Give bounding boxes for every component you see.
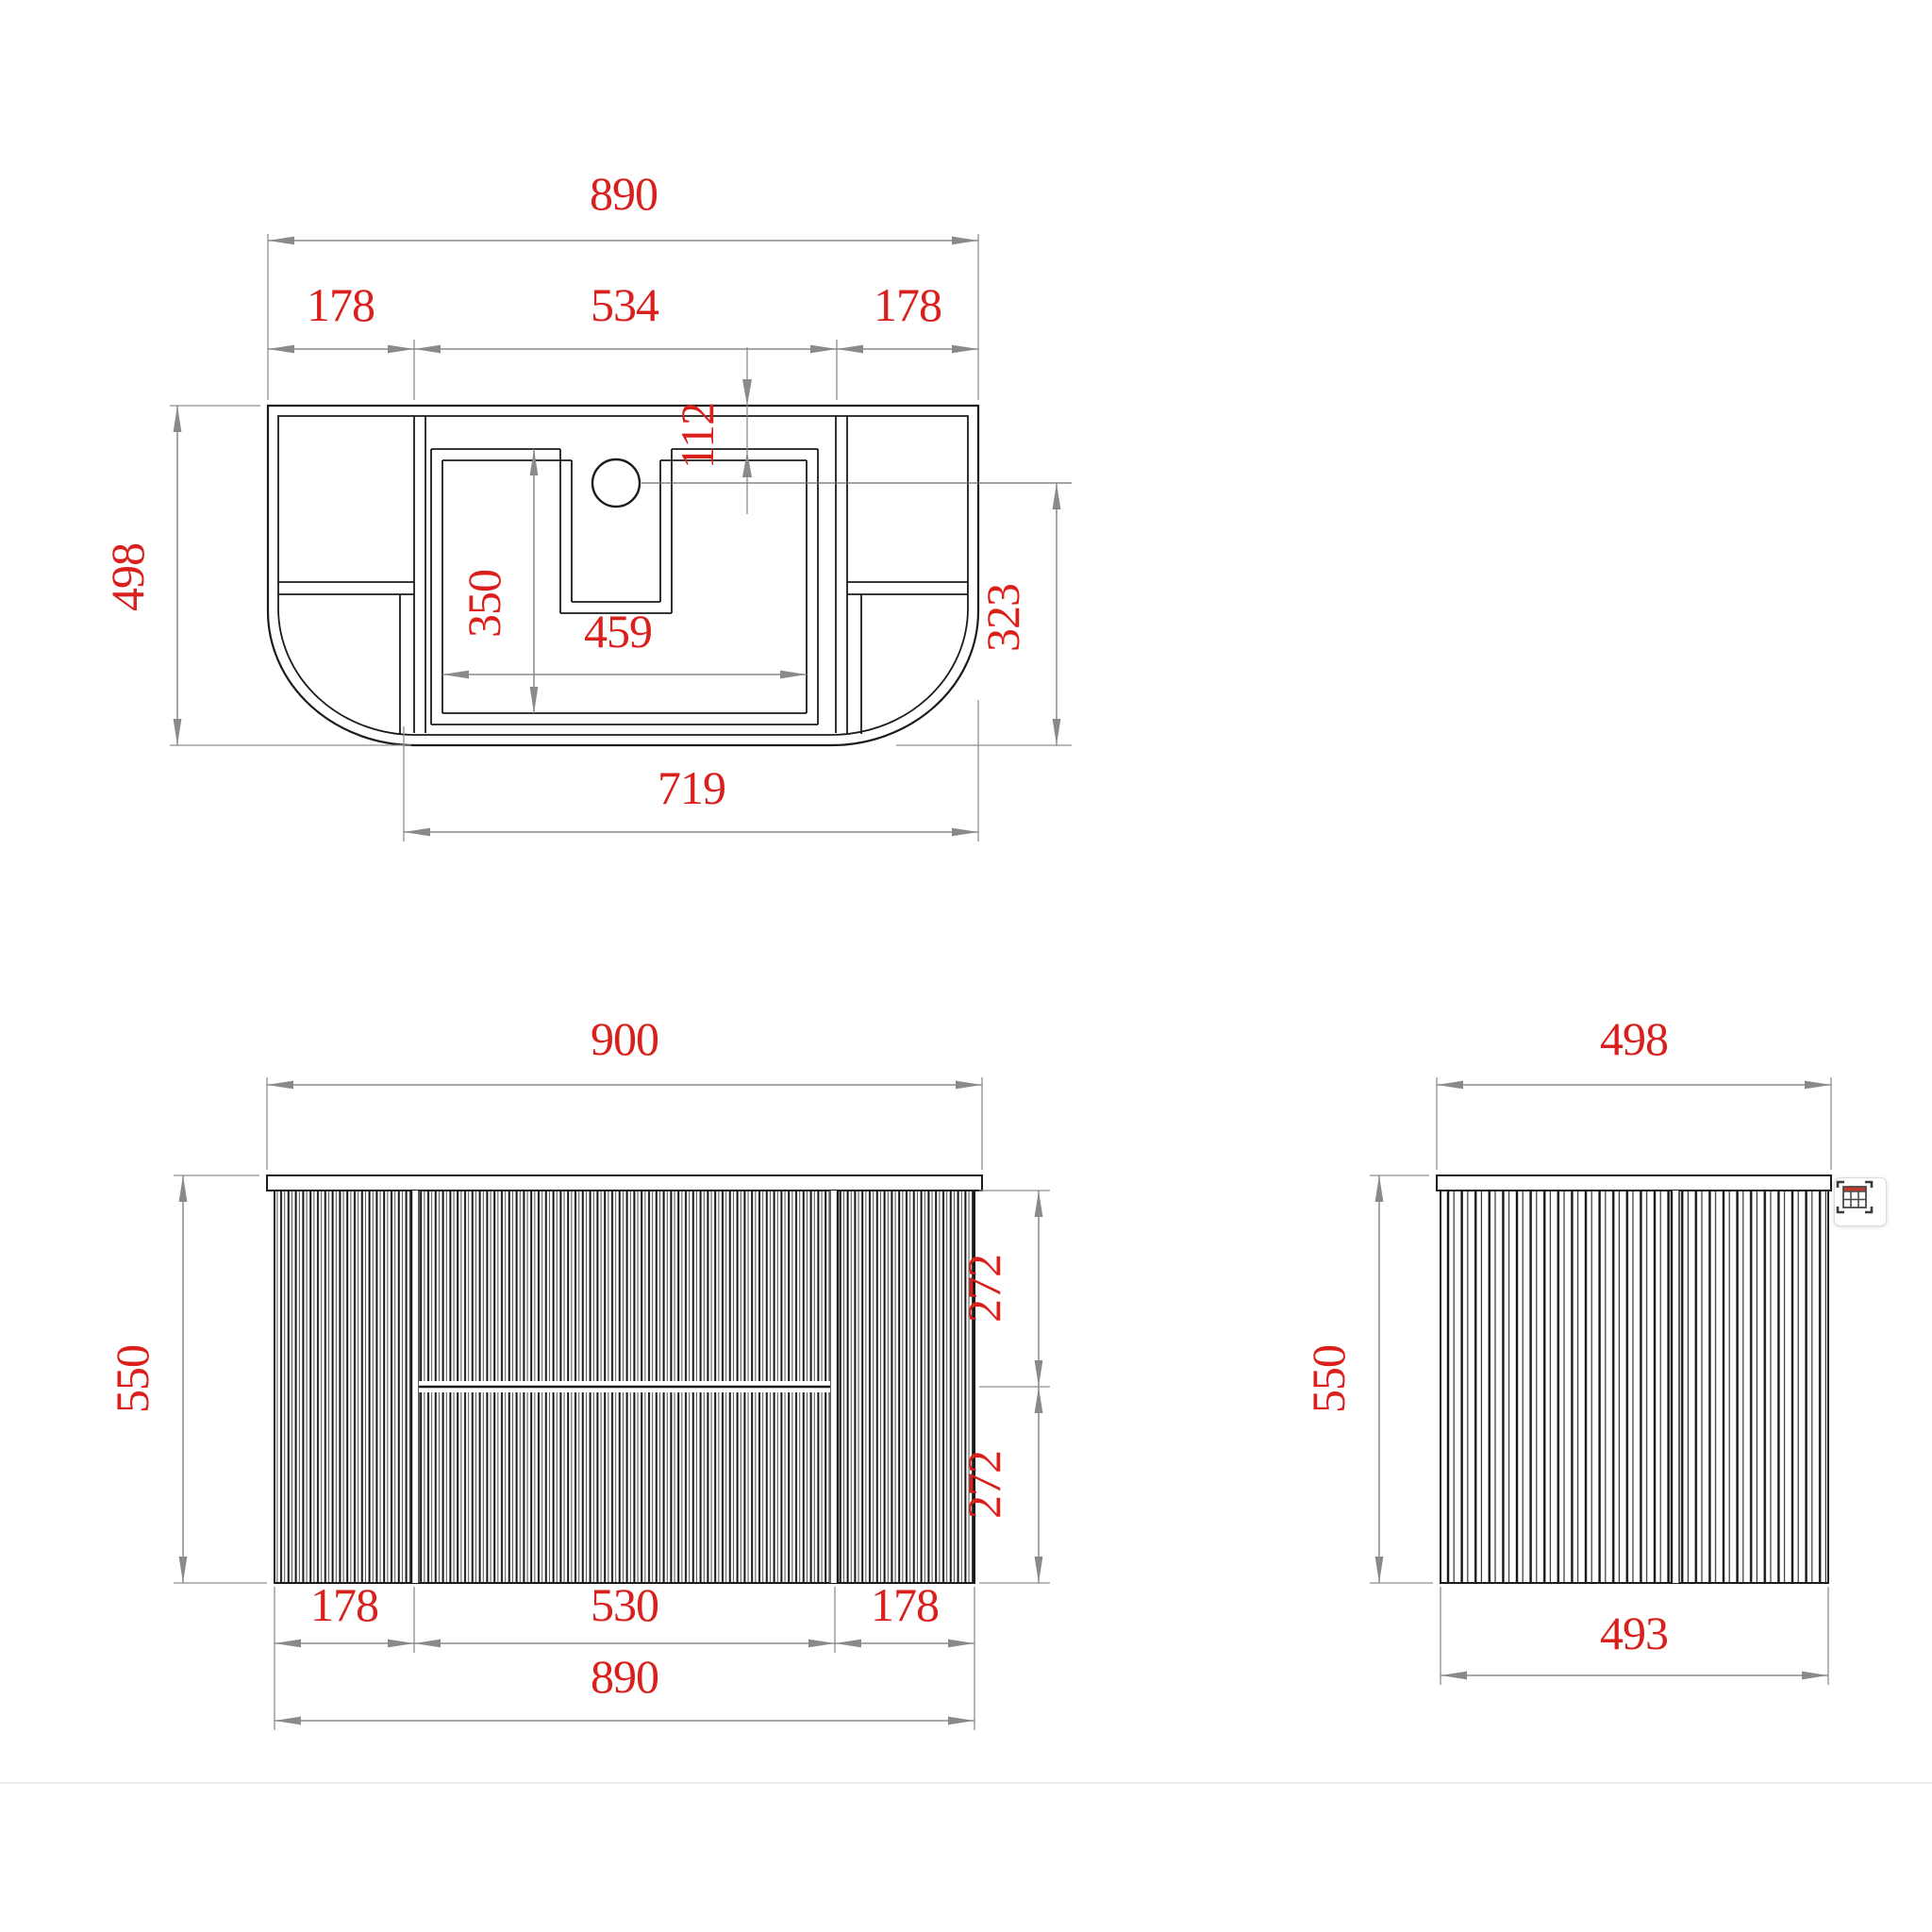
dim-front-right-door: 178 [871, 1578, 939, 1631]
dim-plan-hole-to-front: 323 [976, 584, 1029, 652]
dim-front-upper-drawer: 272 [958, 1255, 1010, 1323]
dim-plan-hole-inset: 112 [671, 403, 724, 469]
dim-plan-center-section: 534 [591, 278, 659, 331]
plan-view: 890 178 534 178 112 498 350 459 [101, 167, 1072, 841]
plan-dimensions: 890 178 534 178 112 498 350 459 [101, 167, 1072, 841]
technical-drawing-page: 890 178 534 178 112 498 350 459 [0, 0, 1932, 1932]
dim-plan-left-section: 178 [307, 278, 375, 331]
dim-front-left-door: 178 [310, 1578, 378, 1631]
vanity-dimension-drawing: 890 178 534 178 112 498 350 459 [0, 0, 1932, 1932]
side-countertop [1437, 1175, 1831, 1191]
dim-front-carcass-width: 890 [591, 1650, 658, 1703]
dim-front-overall-width: 900 [591, 1012, 658, 1065]
dim-front-lower-drawer: 272 [958, 1451, 1010, 1519]
front-drawer-gap [419, 1381, 830, 1392]
dim-plan-overall-depth: 498 [101, 543, 154, 611]
dim-plan-cutout-depth: 350 [458, 570, 510, 638]
page-separator [0, 1782, 1932, 1784]
front-countertop [267, 1175, 982, 1191]
capture-table-button[interactable] [1834, 1177, 1887, 1226]
side-view: 498 550 493 [1302, 1012, 1831, 1685]
dim-front-drawer-width: 530 [591, 1578, 658, 1631]
dim-plan-right-section: 178 [874, 278, 941, 331]
capture-table-icon [1835, 1178, 1874, 1216]
front-view: 900 550 272 272 178 530 178 [106, 1012, 1050, 1730]
dim-side-carcass-depth: 493 [1600, 1607, 1668, 1659]
dim-side-overall-height: 550 [1302, 1345, 1355, 1413]
dim-plan-cutout-width: 459 [584, 605, 652, 658]
faucet-hole [592, 459, 640, 507]
side-door-edge [1671, 1191, 1679, 1583]
side-fluted-panel [1441, 1191, 1828, 1583]
dim-side-top-depth: 498 [1600, 1012, 1668, 1065]
dim-plan-open-base-width: 719 [658, 761, 725, 814]
dim-front-overall-height: 550 [106, 1345, 158, 1413]
dim-plan-overall-width: 890 [590, 167, 658, 220]
